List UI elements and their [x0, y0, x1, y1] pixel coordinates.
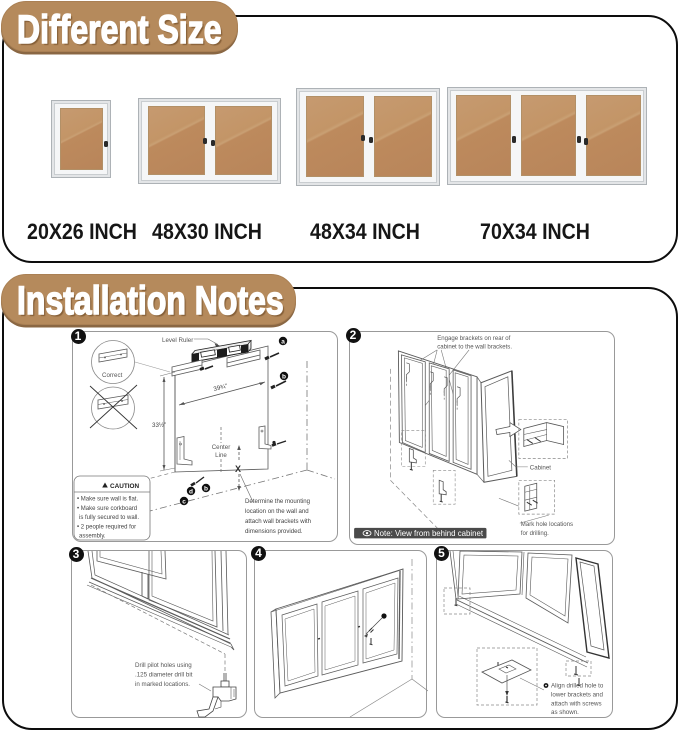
svg-text:• 2 people required for: • 2 people required for — [77, 525, 136, 531]
svg-text:c: c — [182, 499, 186, 506]
svg-text:CAUTION: CAUTION — [110, 483, 139, 490]
svg-text:• Make sure wall is flat.: • Make sure wall is flat. — [77, 497, 138, 503]
svg-text:a: a — [281, 339, 285, 346]
svg-text:39¾”: 39¾” — [213, 383, 228, 393]
svg-text:cabinet to the wall brackets.: cabinet to the wall brackets. — [437, 345, 512, 351]
svg-text:Mark hole locations: Mark hole locations — [520, 522, 572, 528]
svg-text:is fully secured to wall.: is fully secured to wall. — [79, 515, 139, 521]
svg-text:.125 diameter drill bit: .125 diameter drill bit — [135, 671, 193, 678]
svg-text:lower brackets and: lower brackets and — [551, 691, 603, 698]
svg-text:Drill pilot holes using: Drill pilot holes using — [135, 662, 192, 669]
svg-text:Correct: Correct — [102, 372, 123, 379]
svg-text:Level Ruler: Level Ruler — [162, 337, 193, 344]
svg-text:Cabinet: Cabinet — [529, 465, 551, 472]
svg-text:assembly.: assembly. — [79, 534, 106, 540]
svg-text:dimensions provided.: dimensions provided. — [245, 528, 303, 535]
svg-text:Center: Center — [212, 444, 231, 451]
svg-text:attach wall brackets with: attach wall brackets with — [245, 518, 311, 525]
svg-text:in marked locations.: in marked locations. — [135, 681, 190, 688]
svg-text:X: X — [235, 464, 241, 474]
svg-text:Engage brackets on rear of: Engage brackets on rear of — [437, 336, 510, 342]
svg-text:d: d — [189, 489, 193, 496]
svg-text:b: b — [204, 486, 208, 493]
svg-text:Determine the mounting: Determine the mounting — [245, 498, 310, 505]
svg-text:attach with screws: attach with screws — [551, 700, 602, 707]
svg-text:for drilling.: for drilling. — [520, 531, 548, 537]
svg-text:Line: Line — [215, 452, 227, 459]
svg-text:b: b — [282, 374, 286, 381]
svg-text:as shown.: as shown. — [551, 709, 579, 716]
svg-text:33½”: 33½” — [152, 422, 166, 429]
svg-text:Note: View from behind cabinet: Note: View from behind cabinet — [374, 529, 484, 538]
svg-text:Align drilled hole to: Align drilled hole to — [551, 682, 604, 689]
svg-text:location on the wall and: location on the wall and — [245, 508, 309, 515]
svg-text:• Make sure corkboard: • Make sure corkboard — [77, 506, 137, 512]
